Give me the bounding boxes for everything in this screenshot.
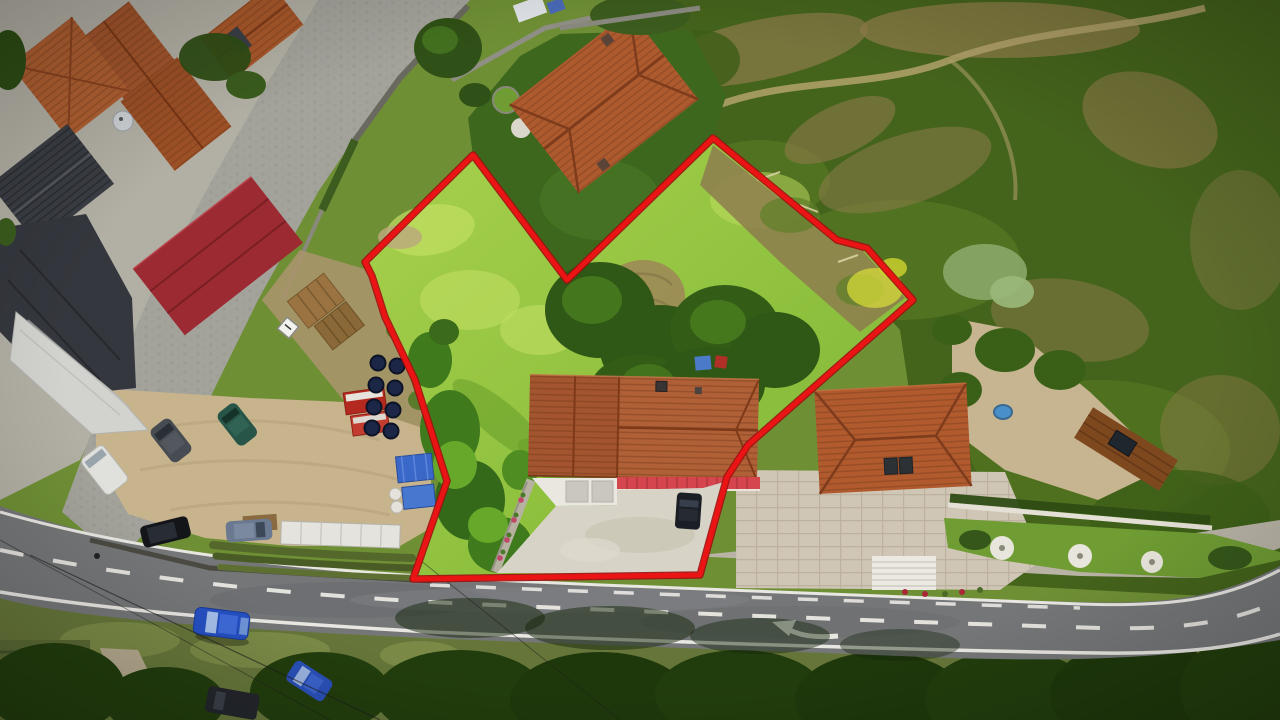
- photo-vignette: [0, 0, 1280, 720]
- aerial-photo: [0, 0, 1280, 720]
- aerial-photo-stage: [0, 0, 1280, 720]
